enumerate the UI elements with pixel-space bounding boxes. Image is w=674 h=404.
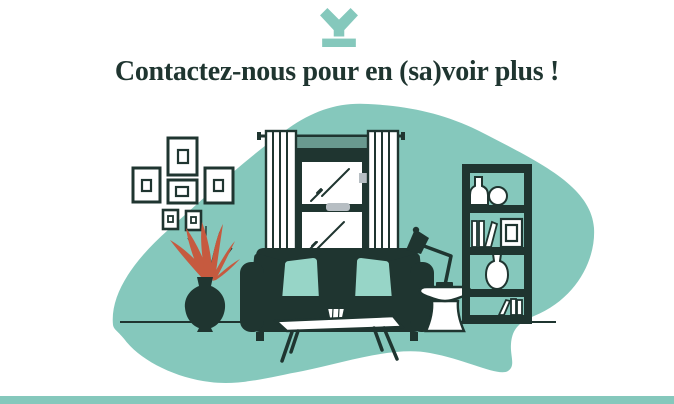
logo-y-shape: [320, 8, 358, 36]
sofa-leg: [256, 332, 264, 341]
seat-cushion-left: [282, 258, 319, 300]
picture-frame: [168, 138, 197, 175]
contact-section: Contactez-nous pour en (sa)voir plus !: [0, 0, 674, 404]
window-latch: [359, 173, 368, 183]
side-table-base: [426, 301, 464, 331]
curtain-left: [266, 131, 296, 258]
picture-frame: [205, 168, 233, 203]
picture-frame: [163, 210, 178, 229]
bottom-accent-bar: [0, 396, 674, 404]
picture-frame: [186, 211, 201, 230]
living-room-illustration: [0, 95, 674, 396]
lamp-base: [436, 282, 453, 288]
picture-frame: [168, 180, 197, 203]
logo-base-shape: [322, 39, 356, 47]
window-pane-upper: [302, 162, 362, 204]
sofa-armrest-left: [240, 262, 264, 332]
seat-cushion-right: [355, 258, 392, 300]
sofa-leg: [410, 332, 418, 341]
window-shadow-band: [294, 137, 370, 149]
rod-cap: [257, 132, 261, 140]
section-title: Contactez-nous pour en (sa)voir plus !: [0, 56, 674, 88]
shelf-sphere: [489, 187, 507, 205]
picture-frame: [133, 168, 160, 202]
rod-cap: [401, 132, 405, 140]
window-handle: [326, 203, 350, 211]
brand-logo-icon: [320, 7, 358, 47]
window-with-curtains: [257, 131, 405, 260]
shelf-frame: [501, 219, 522, 247]
curtain-right: [368, 131, 398, 258]
lamp-cap: [413, 227, 419, 233]
